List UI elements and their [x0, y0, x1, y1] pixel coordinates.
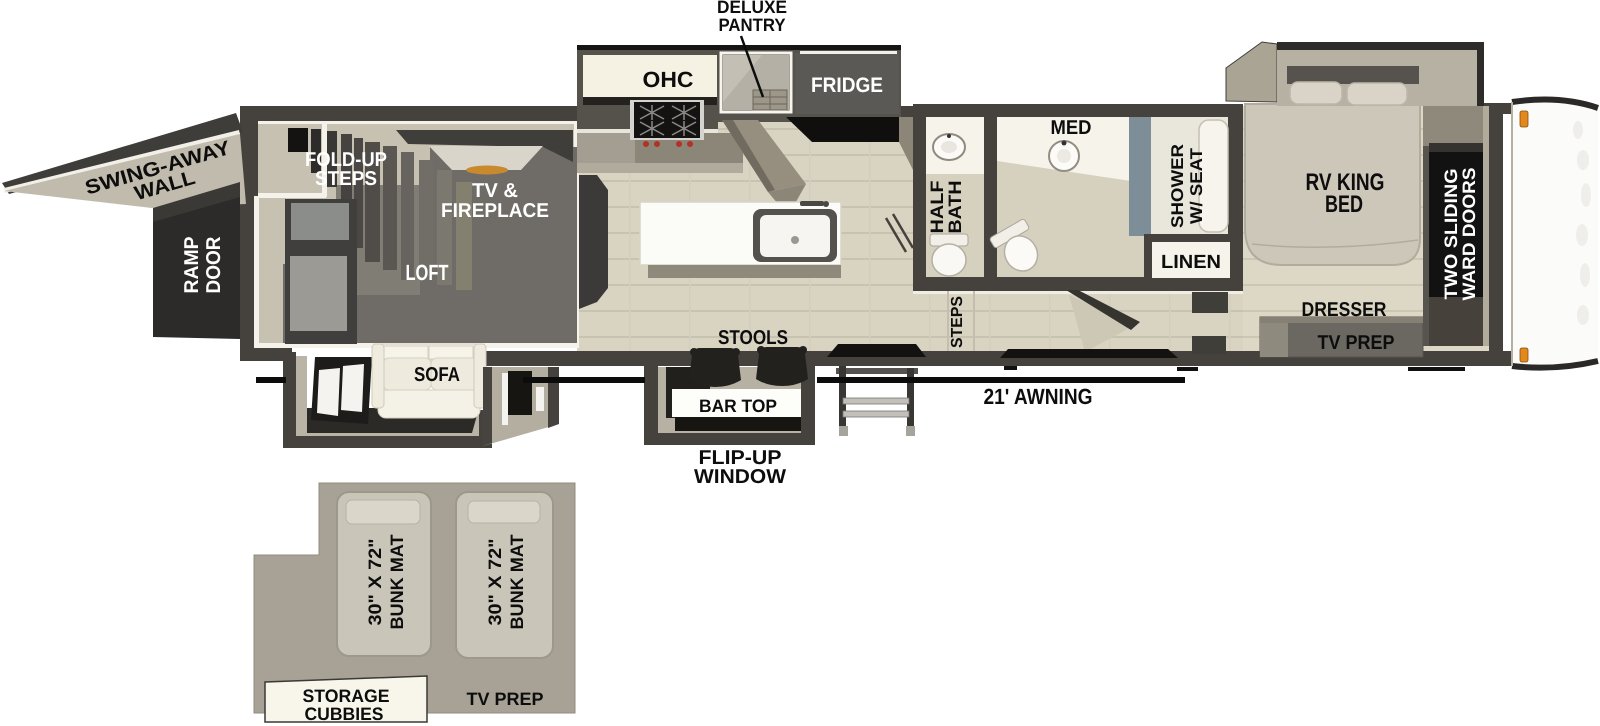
svg-text:RAMP: RAMP	[181, 237, 203, 294]
svg-text:DOOR: DOOR	[203, 236, 225, 294]
svg-text:BUNK MAT: BUNK MAT	[507, 535, 527, 630]
svg-text:21' AWNING: 21' AWNING	[984, 384, 1093, 409]
svg-text:LOFT: LOFT	[406, 260, 449, 285]
svg-text:DRESSER: DRESSER	[1302, 299, 1387, 321]
svg-text:BATH: BATH	[945, 181, 965, 234]
svg-text:TV PREP: TV PREP	[467, 689, 544, 709]
svg-text:STORAGE: STORAGE	[303, 686, 390, 706]
svg-text:TV PREP: TV PREP	[1318, 332, 1395, 354]
svg-text:STEPS: STEPS	[949, 296, 966, 348]
svg-text:BAR TOP: BAR TOP	[699, 396, 777, 416]
svg-text:W/ SEAT: W/ SEAT	[1187, 147, 1206, 224]
svg-text:30" X 72": 30" X 72"	[365, 539, 385, 626]
svg-text:SOFA: SOFA	[414, 364, 460, 386]
svg-text:FRIDGE: FRIDGE	[811, 74, 883, 97]
svg-text:STEPS: STEPS	[315, 168, 377, 190]
svg-text:STOOLS: STOOLS	[718, 327, 788, 349]
svg-text:TWO SLIDING: TWO SLIDING	[1441, 169, 1461, 300]
svg-text:BED: BED	[1325, 191, 1363, 218]
svg-text:WARD DOORS: WARD DOORS	[1459, 168, 1479, 301]
svg-text:MED: MED	[1051, 117, 1092, 139]
svg-text:CUBBIES: CUBBIES	[305, 704, 384, 724]
svg-text:FIREPLACE: FIREPLACE	[441, 200, 549, 222]
svg-text:WINDOW: WINDOW	[694, 466, 786, 488]
svg-text:OHC: OHC	[643, 67, 694, 92]
svg-text:HALF: HALF	[927, 181, 947, 234]
svg-text:PANTRY: PANTRY	[719, 15, 786, 35]
svg-text:30" X 72": 30" X 72"	[485, 539, 505, 626]
svg-text:BUNK MAT: BUNK MAT	[387, 535, 407, 630]
svg-text:LINEN: LINEN	[1161, 252, 1221, 273]
svg-text:TV &: TV &	[472, 180, 518, 202]
svg-text:SHOWER: SHOWER	[1168, 144, 1187, 228]
